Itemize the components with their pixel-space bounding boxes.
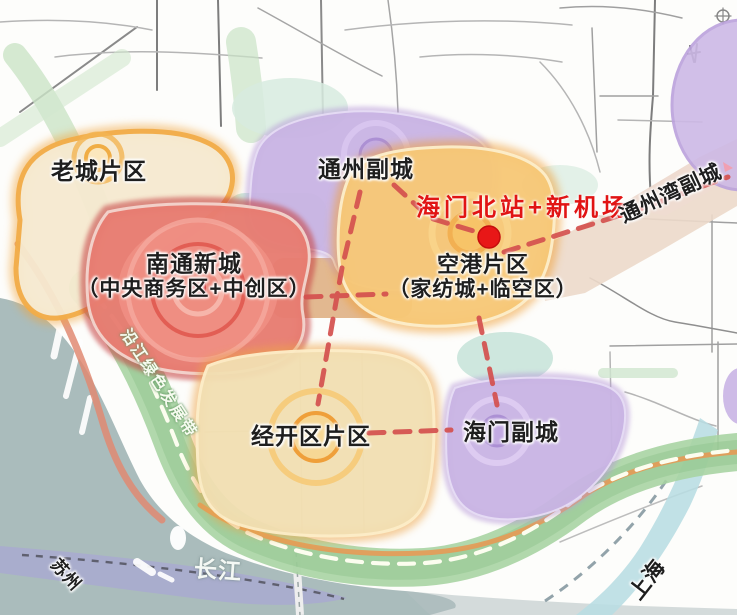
station-red-dot-marker xyxy=(478,226,500,248)
link-nantong-airport xyxy=(306,294,386,297)
east-purple-area xyxy=(723,368,737,424)
region-jingkai-district xyxy=(197,351,434,536)
cbd-core-marker xyxy=(190,282,206,298)
map-graphics xyxy=(0,0,737,615)
planning-map: 老城片区 通州副城 南通新城 （中央商务区+中创区） 海门北站+新机场 空港片区… xyxy=(0,0,737,615)
region-airport-district xyxy=(338,147,554,326)
northeast-purple-area xyxy=(672,20,737,190)
